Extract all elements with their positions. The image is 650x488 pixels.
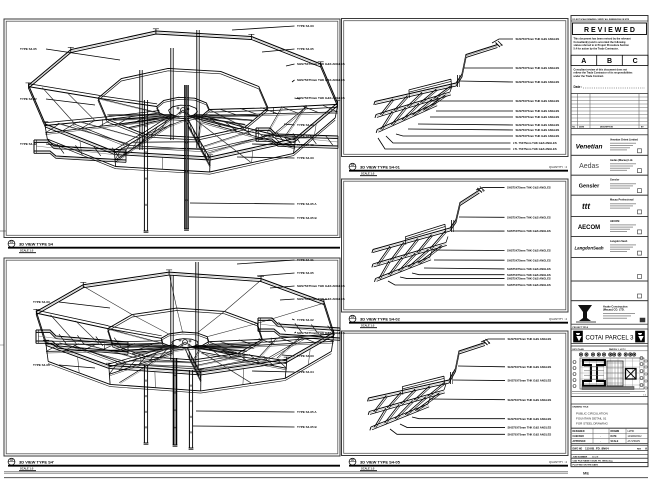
- svg-text:Venetian: Venetian: [576, 144, 603, 151]
- svg-text:(Macau) CO. LTD.: (Macau) CO. LTD.: [603, 308, 625, 312]
- svg-text:SHS75X75mm THK G&S ANGLES: SHS75X75mm THK G&S ANGLES: [297, 78, 345, 82]
- svg-text:TYPE S4-03: TYPE S4-03: [297, 123, 314, 127]
- svg-text:TYPE S4-02: TYPE S4-02: [297, 318, 314, 322]
- svg-text:115UB_FD_8N04: 115UB_FD_8N04: [585, 447, 609, 451]
- svg-text:REV: REV: [637, 448, 642, 450]
- svg-text:A: A: [581, 58, 586, 65]
- svg-text:TYPE S4-03: TYPE S4-03: [297, 143, 314, 147]
- svg-text:3D VIEW TYPE S4: 3D VIEW TYPE S4: [19, 241, 54, 246]
- svg-text:SCALE 1:5: SCALE 1:5: [361, 467, 375, 471]
- svg-text:TYPE S4-03: TYPE S4-03: [297, 354, 314, 358]
- svg-text:TYPE S4-05 A: TYPE S4-05 A: [297, 202, 317, 206]
- svg-text:Gensler: Gensler: [610, 179, 619, 182]
- svg-text:SHS75X75mm THK G&S ANGLES: SHS75X75mm THK G&S ANGLES: [507, 267, 551, 271]
- svg-text:TYPE S4-04: TYPE S4-04: [297, 370, 314, 374]
- svg-text:SHS75X75mm THK G&S ANGLES: SHS75X75mm THK G&S ANGLES: [507, 249, 551, 253]
- svg-text:DWG NO: DWG NO: [573, 448, 583, 450]
- svg-text:PUBLIC CIRCULATION: PUBLIC CIRCULATION: [576, 412, 608, 416]
- svg-text:PLOTTED ON THE DATE: PLOTTED ON THE DATE: [573, 464, 599, 467]
- svg-text:SCALE 1:5: SCALE 1:5: [361, 324, 375, 328]
- svg-text:ME: ME: [583, 471, 589, 476]
- svg-text:SCALE 1:5: SCALE 1:5: [361, 172, 375, 176]
- svg-text:SHS75X75mm THK G&S ANGLES: SHS75X75mm THK G&S ANGLES: [516, 123, 560, 127]
- svg-text:under the Trade Contract.: under the Trade Contract.: [574, 75, 605, 78]
- svg-text:DRAWN: DRAWN: [611, 430, 620, 433]
- svg-text:FOUNTAIN DETAIL 01: FOUNTAIN DETAIL 01: [576, 417, 607, 421]
- svg-text:NO.: NO.: [572, 127, 576, 129]
- svg-text:Venetian Orient Limited: Venetian Orient Limited: [610, 138, 638, 141]
- svg-text:Langdon Seah: Langdon Seah: [610, 240, 628, 243]
- svg-text:SHS75X75mm THK G&S ANGLES: SHS75X75mm THK G&S ANGLES: [507, 258, 551, 262]
- svg-text:SHS75X75mm THK G&S ANGLES: SHS75X75mm THK G&S ANGLES: [508, 432, 552, 436]
- svg-text:SHS75X75mm THK G&S ANGLES: SHS75X75mm THK G&S ANGLES: [297, 96, 345, 100]
- svg-text:QUANTITY : 4: QUANTITY : 4: [549, 317, 567, 321]
- svg-text:LTL 75X75mm THK G&S ANGLES: LTL 75X75mm THK G&S ANGLES: [513, 147, 557, 151]
- svg-text:SHS75X75mm THK G&S ANGLES: SHS75X75mm THK G&S ANGLES: [516, 115, 560, 119]
- svg-text:SHS75X75mm THK G&S ANGLES: SHS75X75mm THK G&S ANGLES: [516, 134, 560, 138]
- svg-text:SHS75X75mm THK G&S ANGLES: SHS75X75mm THK G&S ANGLES: [508, 337, 552, 341]
- svg-text:SHS75X75mm THK G&S ANGLES: SHS75X75mm THK G&S ANGLES: [508, 426, 552, 430]
- svg-text:Gensler: Gensler: [579, 184, 600, 190]
- svg-text:Macau Professional: Macau Professional: [610, 199, 634, 202]
- svg-text:SHS75X75mm THK G&S ANGLES: SHS75X75mm THK G&S ANGLES: [508, 398, 552, 402]
- svg-text:DATE: DATE: [611, 435, 618, 438]
- svg-text:SHS75X75mm THK G&S ANGLES: SHS75X75mm THK G&S ANGLES: [516, 109, 560, 113]
- svg-text:CHECKED: CHECKED: [573, 436, 585, 438]
- svg-text:SCALE: SCALE: [611, 440, 619, 443]
- svg-text:SCALE 1:5: SCALE 1:5: [20, 467, 34, 471]
- svg-text:TYPE S4-05 A: TYPE S4-05 A: [297, 410, 317, 414]
- svg-text:DESCRIPTION: DESCRIPTION: [600, 127, 614, 129]
- svg-text:SHS75X75mm THK G&S ANGLES: SHS75X75mm THK G&S ANGLES: [507, 215, 551, 219]
- svg-text:3D VIEW TYPE S4': 3D VIEW TYPE S4': [19, 459, 54, 464]
- svg-text:Aedas (Macau) Ltd.: Aedas (Macau) Ltd.: [610, 159, 633, 162]
- svg-text:LangdonSeah: LangdonSeah: [574, 246, 603, 251]
- svg-text:Date :: Date :: [574, 85, 583, 89]
- svg-text:SHS75X75mm THK G&S ANGLES: SHS75X75mm THK G&S ANGLES: [516, 128, 560, 132]
- svg-text:SHS75X75mm THK G&S ANGLES: SHS75X75mm THK G&S ANGLES: [516, 66, 560, 70]
- svg-text:COTAI PARCEL 3: COTAI PARCEL 3: [586, 335, 635, 341]
- svg-text:C: C: [633, 58, 638, 65]
- svg-text:PARCEL 1, LOT 2: PARCEL 1, LOT 2: [609, 348, 626, 351]
- svg-text:SHS75X75mm THK G&S ANGLES: SHS75X75mm THK G&S ANGLES: [516, 99, 560, 103]
- svg-text:LTL 75X75mm THK G&S ANGLES: LTL 75X75mm THK G&S ANGLES: [513, 141, 557, 145]
- svg-text:TYPE S4-05: TYPE S4-05: [297, 271, 314, 275]
- svg-text:DO NOT SCALE DRAWING. VERIFY A: DO NOT SCALE DRAWING. VERIFY ALL DIMENSI…: [573, 18, 630, 21]
- svg-text:SCALE 1:5: SCALE 1:5: [20, 249, 34, 253]
- svg-text:TYPE S4-05: TYPE S4-05: [20, 47, 37, 51]
- svg-text:DRAWING TITLE: DRAWING TITLE: [573, 406, 589, 409]
- svg-text:JOB NUMBER: JOB NUMBER: [573, 456, 588, 458]
- svg-text:SHS75X75mm THK G&S ANGLES: SHS75X75mm THK G&S ANGLES: [508, 379, 552, 383]
- svg-text:QUANTITY : 4: QUANTITY : 4: [549, 460, 567, 464]
- svg-text:TYPE S4-03: TYPE S4-03: [297, 24, 314, 28]
- svg-text:SHS75X75mm THK G&S ANGLES: SHS75X75mm THK G&S ANGLES: [507, 186, 551, 190]
- svg-text:SHS75X75mm THK G&S ANGLES: SHS75X75mm THK G&S ANGLES: [507, 273, 551, 277]
- svg-text:SHS75X75mm THK G&S ANGLES: SHS75X75mm THK G&S ANGLES: [508, 417, 552, 421]
- svg-text:SHS75X75mm THK G&S ANGLES: SHS75X75mm THK G&S ANGLES: [297, 62, 345, 66]
- svg-text:3152E: 3152E: [592, 456, 599, 458]
- svg-text:AECOM: AECOM: [578, 225, 600, 231]
- svg-text:SHS75X75mm THK G&S ANGLES: SHS75X75mm THK G&S ANGLES: [508, 365, 552, 369]
- svg-text:FOR STEEL DRAWING: FOR STEEL DRAWING: [576, 422, 608, 426]
- svg-text:TYPE S4-01: TYPE S4-01: [297, 258, 314, 262]
- svg-text:SHS75X75mm THK G&S ANGLES: SHS75X75mm THK G&S ANGLES: [516, 80, 560, 84]
- svg-text:TYPE S4-06: TYPE S4-06: [33, 363, 50, 367]
- svg-text:AS SHOWN: AS SHOWN: [628, 440, 641, 443]
- svg-text:SHS75X75mm THK G&S ANGLES: SHS75X75mm THK G&S ANGLES: [507, 277, 551, 281]
- svg-text:R E V I E W E D: R E V I E W E D: [584, 27, 635, 34]
- svg-text:3D VIEW TYPE S4-02: 3D VIEW TYPE S4-02: [360, 316, 401, 321]
- svg-text:Aedas: Aedas: [579, 163, 599, 170]
- svg-text:DESIGNED: DESIGNED: [573, 431, 585, 433]
- svg-text:APPROVED: APPROVED: [573, 440, 586, 443]
- svg-text:CAD FILE NAME 115UB_FD_8N04.d: CAD FILE NAME 115UB_FD_8N04.dwg: [573, 460, 614, 463]
- svg-text:B: B: [607, 58, 612, 65]
- svg-text:DATE: DATE: [579, 126, 585, 129]
- svg-text:3D VIEW TYPE S4-05: 3D VIEW TYPE S4-05: [360, 459, 401, 464]
- svg-text:TYPE S4-03: TYPE S4-03: [297, 156, 314, 160]
- svg-text:SHS75X75mm THK G&S ANGLES: SHS75X75mm THK G&S ANGLES: [297, 284, 345, 288]
- svg-text:SHS75X75mm THK G&S ANGLES: SHS75X75mm THK G&S ANGLES: [507, 229, 551, 233]
- svg-text:14/MAR/2012: 14/MAR/2012: [628, 435, 643, 438]
- svg-text:QUANTITY : 4: QUANTITY : 4: [549, 165, 567, 169]
- svg-text:SHS75X75mm THK G&S ANGLES: SHS75X75mm THK G&S ANGLES: [297, 297, 345, 301]
- svg-text:LMHO: LMHO: [628, 431, 635, 433]
- svg-text:TYPE S4-04: TYPE S4-04: [297, 134, 314, 138]
- svg-text:SHS75X75mm THK G&S ANGLES: SHS75X75mm THK G&S ANGLES: [516, 37, 560, 41]
- svg-text:ttt: ttt: [582, 202, 590, 211]
- svg-text:SHS75X75mm THK G&S ANGLES: SHS75X75mm THK G&S ANGLES: [297, 331, 345, 335]
- svg-text:TYPE S4-05 B: TYPE S4-05 B: [297, 216, 318, 220]
- svg-text:AECOM: AECOM: [610, 220, 619, 223]
- svg-text:KEY PLAN: KEY PLAN: [573, 348, 584, 351]
- svg-text:SHS75X75mm THK G&S ANGLES: SHS75X75mm THK G&S ANGLES: [507, 283, 551, 287]
- svg-text:TYPE S4-02: TYPE S4-02: [20, 97, 37, 101]
- svg-text:TYPE S4-03: TYPE S4-03: [33, 300, 50, 304]
- svg-text:3D VIEW TYPE S4-01: 3D VIEW TYPE S4-01: [360, 164, 401, 169]
- svg-text:TYPE S4-05: TYPE S4-05: [297, 47, 314, 51]
- svg-text:TYPE S4-02: TYPE S4-02: [20, 142, 37, 146]
- svg-text:TYPE S4-05 B: TYPE S4-05 B: [297, 425, 318, 429]
- svg-text:5.4 for action by the Trade Co: 5.4 for action by the Trade Contractor.: [574, 47, 619, 50]
